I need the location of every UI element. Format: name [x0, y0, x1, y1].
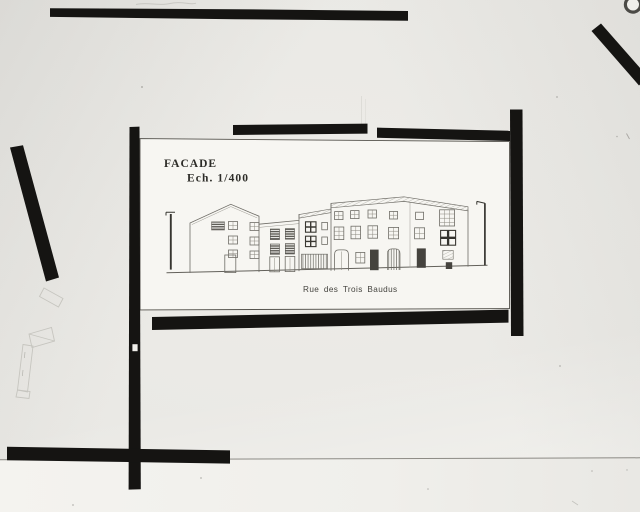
backing-board-edge — [0, 458, 640, 512]
ghost-mark — [18, 345, 34, 393]
dark-door — [417, 248, 426, 267]
street-caption: Rue des Trois Baudus — [303, 285, 398, 294]
punch-hole-ring — [625, 0, 640, 12]
small-dark-opening — [446, 262, 452, 269]
ghost-mark — [40, 288, 64, 307]
louvered-window — [212, 222, 225, 230]
lower-board-strip — [0, 458, 640, 512]
shuttered-window — [285, 229, 294, 240]
ghost-mark-line — [29, 334, 55, 341]
photo-artifacts — [136, 3, 630, 139]
tape-notch — [132, 344, 137, 351]
shuttered-window — [270, 229, 279, 240]
storefront-shutter — [302, 254, 328, 268]
ghost-tape-marks — [16, 288, 63, 399]
tape-right-vertical — [510, 110, 524, 337]
arched-grilled-door — [387, 249, 400, 270]
photo-scene: FACADE Ech. 1/400 Rue des Trois Baudus — [0, 0, 640, 512]
title-facade: FACADE — [164, 158, 217, 170]
shuttered-window — [285, 244, 294, 254]
tape-strip-top — [50, 8, 408, 21]
tape-top-segment-1 — [233, 124, 368, 135]
faint-scribble — [136, 3, 196, 5]
tape-strip-diagonal-left — [10, 145, 59, 281]
tape-strip-diagonal-right — [592, 24, 640, 86]
title-scale: Ech. 1/400 — [187, 173, 249, 185]
tape-bottom — [152, 310, 509, 330]
ghost-mark-dashes — [22, 352, 25, 376]
archive-photo: FACADE Ech. 1/400 Rue des Trois Baudus — [0, 0, 640, 512]
tape-left-vertical — [129, 127, 141, 490]
scratch-mark — [627, 134, 630, 140]
shuttered-window — [270, 244, 279, 254]
dark-door — [370, 250, 379, 271]
hatched-vent — [443, 250, 453, 259]
tape-top-segment-2 — [377, 128, 510, 141]
